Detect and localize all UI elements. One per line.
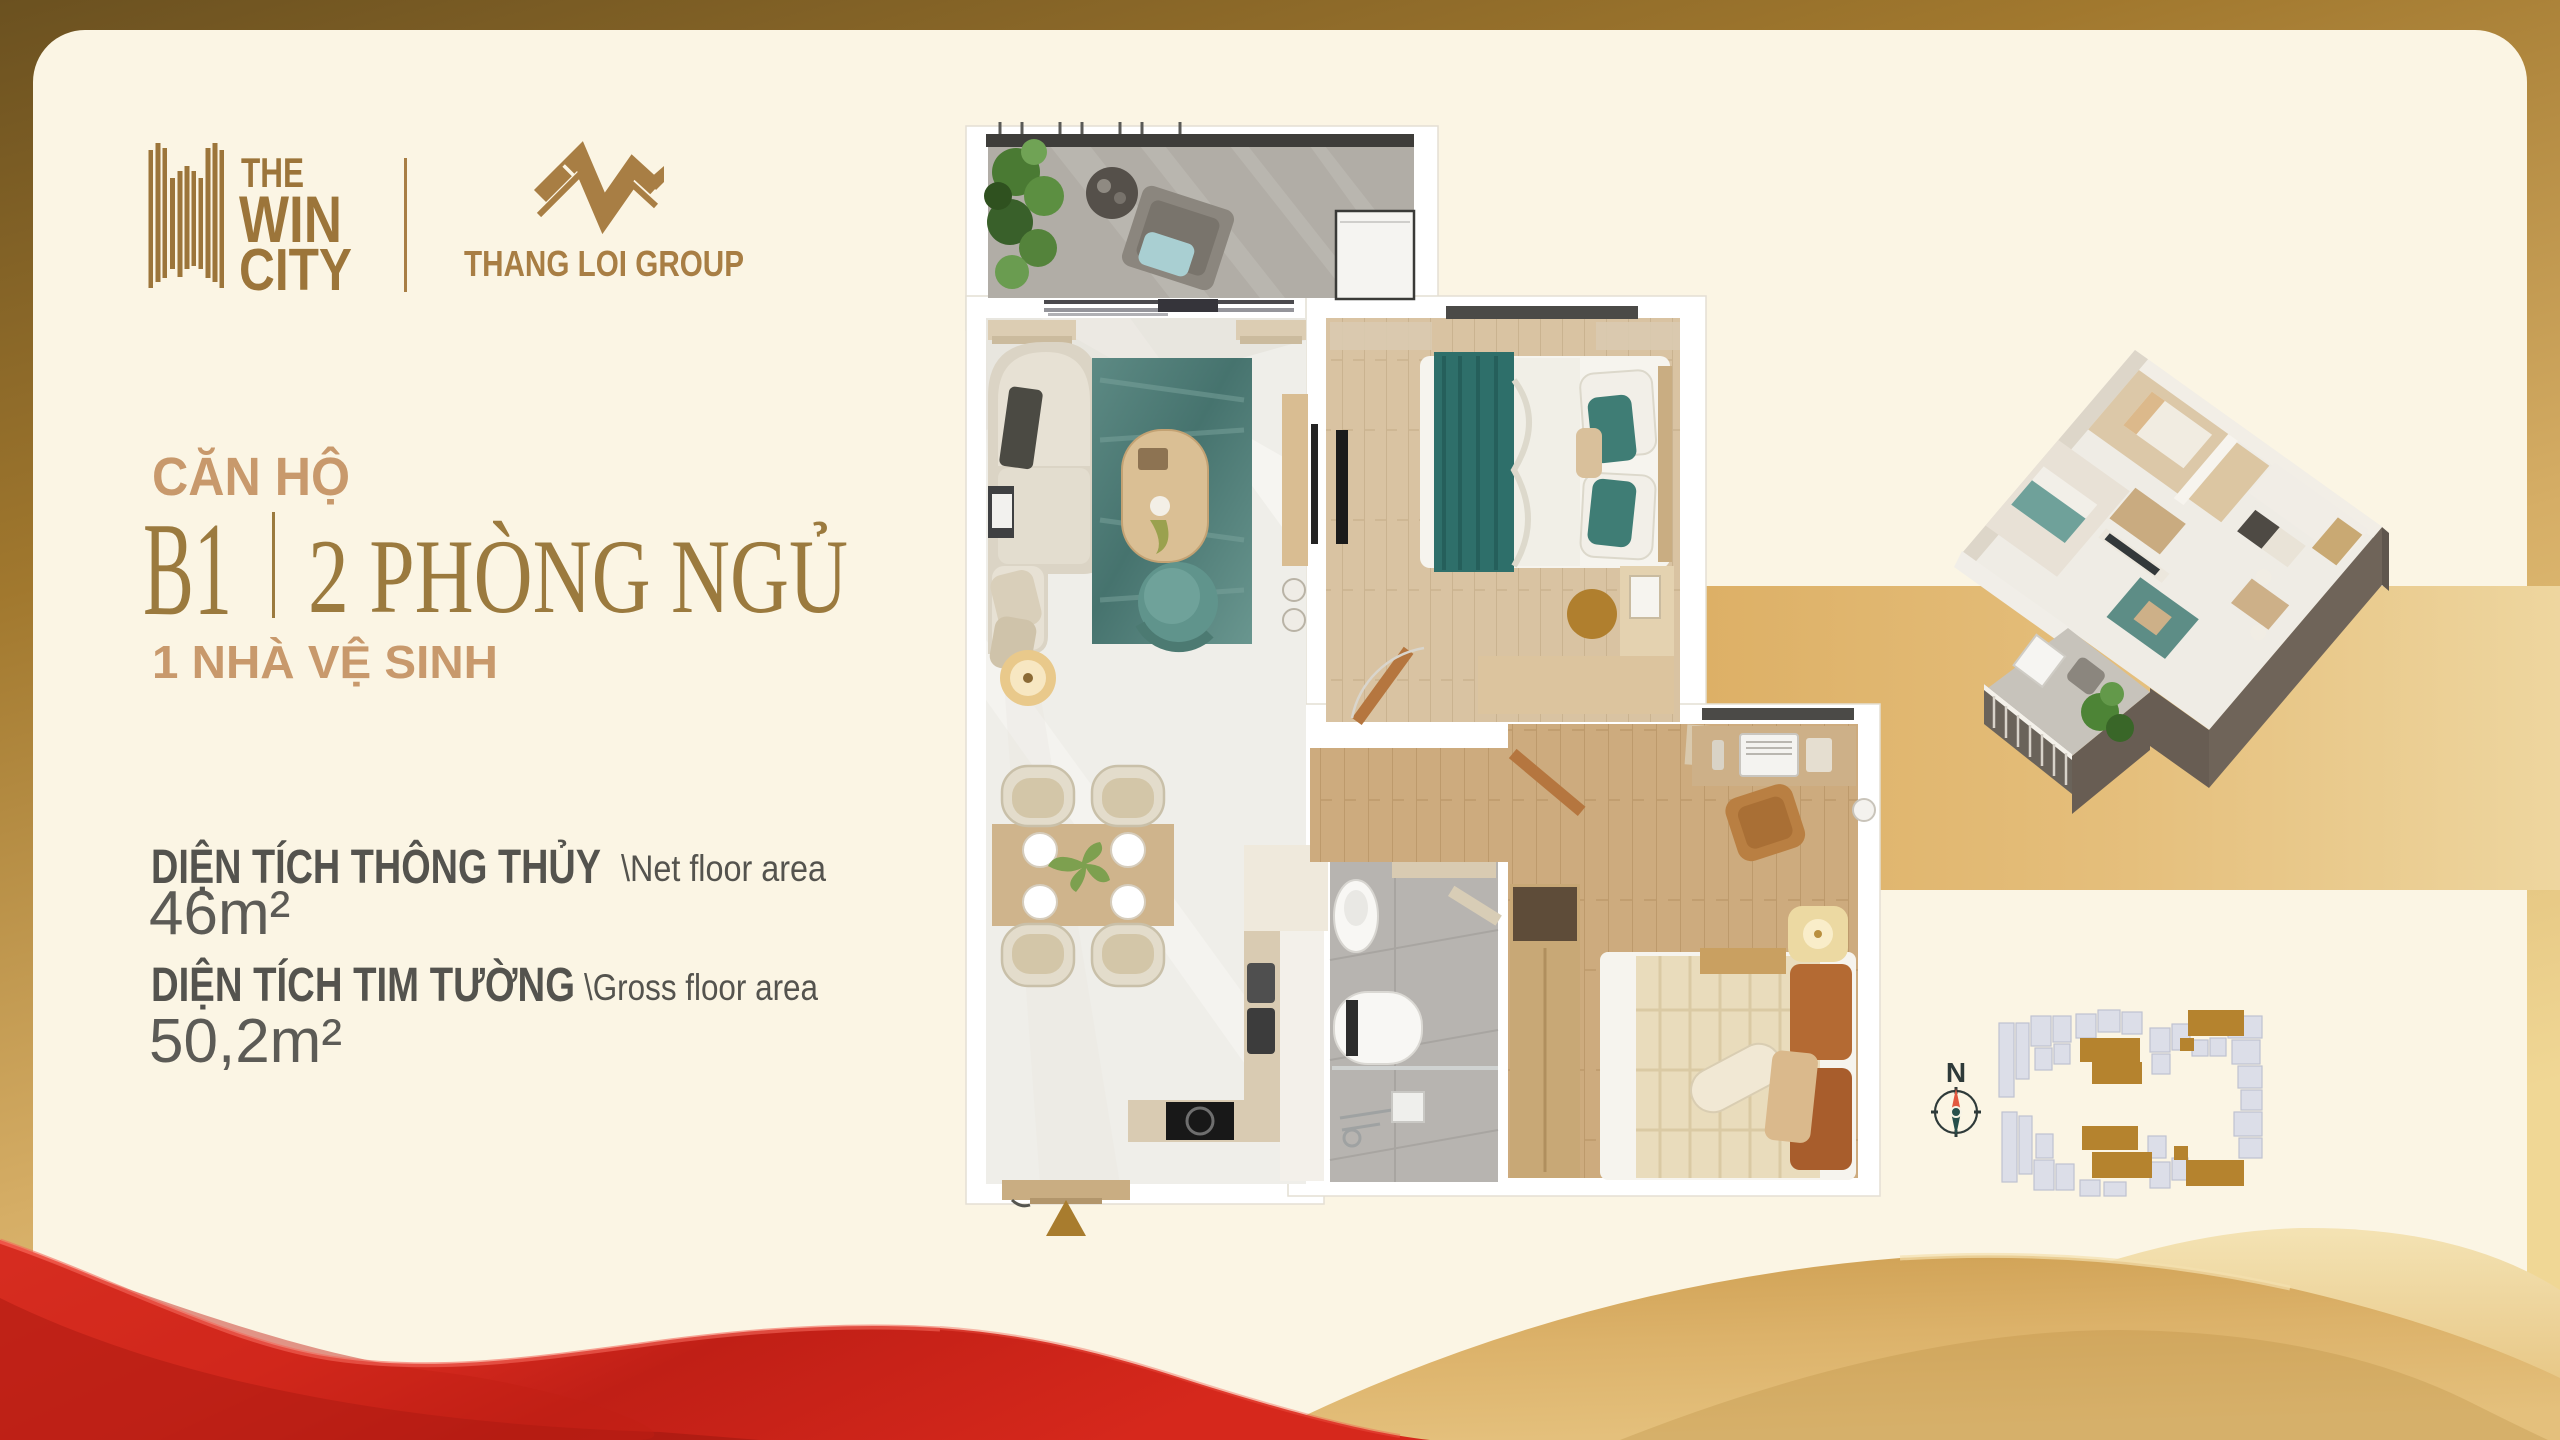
svg-text:50,2m²: 50,2m² [149,1007,342,1076]
svg-text:THANG LOI GROUP: THANG LOI GROUP [464,243,744,284]
svg-text:DIỆN TÍCH TIM TƯỜNG: DIỆN TÍCH TIM TƯỜNG [151,957,575,1012]
svg-text:N: N [1946,1057,1966,1088]
svg-text:1 NHÀ VỆ SINH: 1 NHÀ VỆ SINH [152,636,498,688]
svg-text:46m²: 46m² [149,879,290,948]
svg-text:CITY: CITY [239,237,352,303]
svg-text:\Gross floor area: \Gross floor area [584,967,818,1008]
svg-text:\Net floor area: \Net floor area [621,848,826,889]
svg-text:2 PHÒNG NGỦ: 2 PHÒNG NGỦ [308,518,848,635]
svg-text:B1: B1 [143,495,232,643]
